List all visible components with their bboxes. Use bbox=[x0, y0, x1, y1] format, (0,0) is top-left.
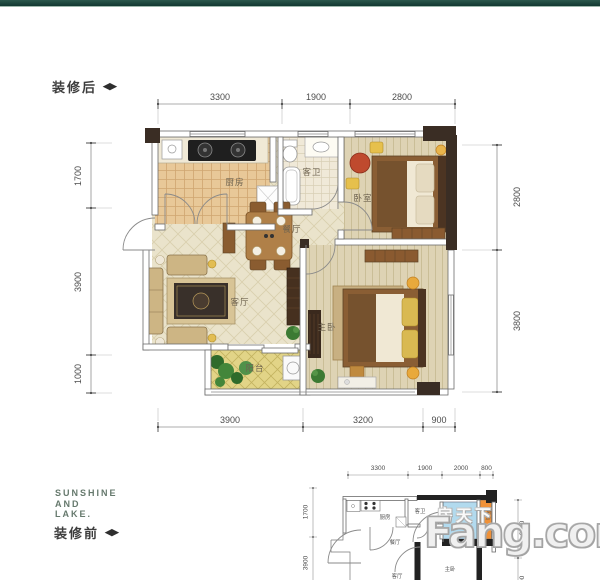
dim-left-3: 1000 bbox=[73, 364, 83, 384]
brand-line-2: AND bbox=[55, 499, 118, 510]
small-fixtures bbox=[347, 501, 406, 528]
room-label-living: 客厅 bbox=[230, 297, 249, 307]
small-dim-top-1: 3300 bbox=[371, 465, 386, 472]
toggle-arrows-icon[interactable]: ◀▶ bbox=[105, 527, 119, 538]
dim-left-1: 1700 bbox=[73, 166, 83, 186]
small-dim-right-2: 3800 bbox=[519, 575, 526, 580]
small-dim-left-2: 3900 bbox=[303, 555, 310, 570]
dim-left-2: 3900 bbox=[73, 272, 83, 292]
room-label-master: 主卧 bbox=[317, 322, 336, 332]
dim-right-2: 3800 bbox=[512, 311, 522, 331]
dim-bottom-2: 3200 bbox=[353, 415, 373, 425]
room-label-bedroom: 卧室 bbox=[353, 193, 372, 203]
small-room-label-master: 主卧 bbox=[445, 565, 456, 573]
floor-plan-after: 厨房 客卫 卧室 餐厅 客厅 主卧 阳台 3300 1900 2800 3900… bbox=[50, 90, 540, 435]
room-label-guest-bath: 客卫 bbox=[302, 167, 321, 177]
small-dim-top-4: 800 bbox=[481, 465, 492, 472]
watermark-en: Fang.com bbox=[424, 508, 600, 557]
before-decoration-toggle[interactable]: 装修前 ◀▶ bbox=[54, 523, 119, 542]
small-dim-top-2: 1900 bbox=[418, 465, 433, 472]
room-label-balcony: 阳台 bbox=[245, 363, 264, 373]
dim-top-2: 1900 bbox=[306, 92, 326, 102]
brand-line-3: LAKE. bbox=[55, 509, 118, 520]
dim-top-1: 3300 bbox=[210, 92, 230, 102]
brand-text: SUNSHINE AND LAKE. bbox=[55, 488, 118, 520]
room-label-dining: 餐厅 bbox=[282, 224, 301, 234]
dim-bottom-1: 3900 bbox=[220, 415, 240, 425]
page: 装修后 ◀▶ bbox=[0, 0, 600, 580]
brand-line-1: SUNSHINE bbox=[55, 488, 118, 499]
dim-top-3: 2800 bbox=[392, 92, 412, 102]
before-decoration-label: 装修前 bbox=[54, 523, 99, 542]
room-label-kitchen: 厨房 bbox=[225, 177, 244, 187]
dim-right-1: 2800 bbox=[512, 187, 522, 207]
small-room-label-kitchen: 厨房 bbox=[380, 513, 391, 521]
small-dim-left-1: 1700 bbox=[303, 504, 310, 519]
small-dim-top-3: 2000 bbox=[454, 465, 469, 472]
small-room-label-dining: 餐厅 bbox=[390, 538, 401, 546]
small-room-label-living: 客厅 bbox=[392, 572, 403, 580]
dim-bottom-3: 900 bbox=[431, 415, 446, 425]
top-bar bbox=[0, 0, 600, 7]
